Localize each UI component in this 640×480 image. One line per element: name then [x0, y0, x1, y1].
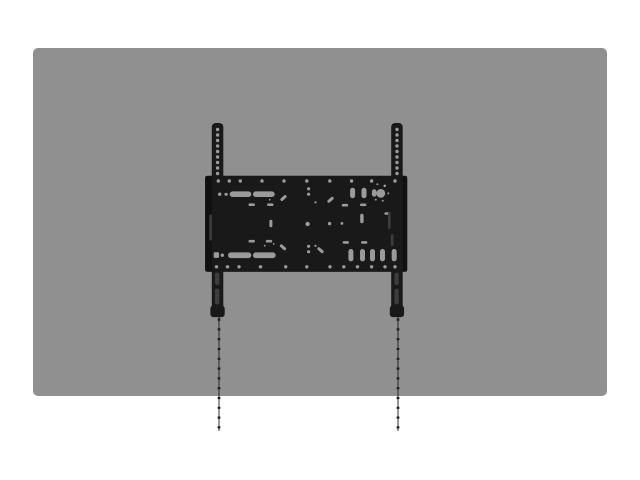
rail-hole-columns — [216, 128, 399, 175]
tv-wall-mount-bracket — [0, 0, 640, 480]
product-image — [0, 0, 640, 480]
